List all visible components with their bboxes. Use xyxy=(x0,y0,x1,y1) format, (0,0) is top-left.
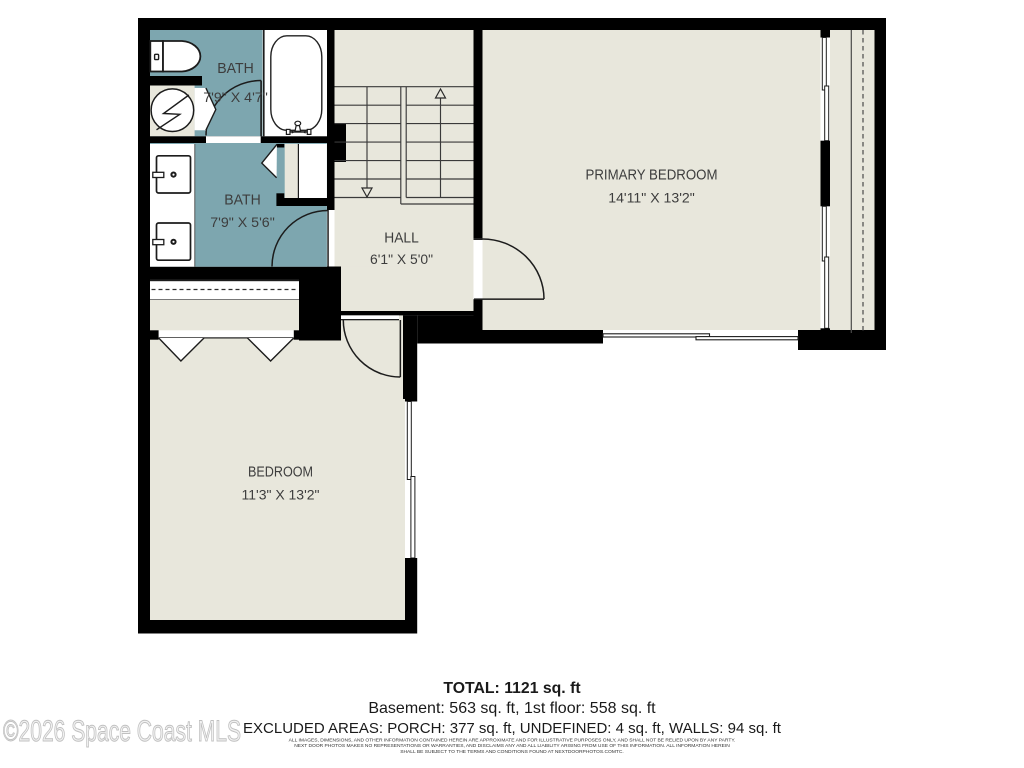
svg-text:Basement: 563 sq. ft, 1st floo: Basement: 563 sq. ft, 1st floor: 558 sq.… xyxy=(368,700,656,717)
svg-text:BEDROOM: BEDROOM xyxy=(248,465,313,481)
svg-text:PRIMARY BEDROOM: PRIMARY BEDROOM xyxy=(586,168,718,184)
svg-text:BATH: BATH xyxy=(224,193,261,209)
svg-text:HALL: HALL xyxy=(384,231,419,247)
svg-text:11'3" X 13'2": 11'3" X 13'2" xyxy=(242,488,320,504)
svg-text:EXCLUDED AREAS: PORCH: 377 sq.: EXCLUDED AREAS: PORCH: 377 sq. ft, UNDEF… xyxy=(243,720,782,737)
svg-text:©2026 Space Coast MLS: ©2026 Space Coast MLS xyxy=(3,715,241,748)
svg-text:7'9" X 5'6": 7'9" X 5'6" xyxy=(210,215,275,231)
svg-text:7'9" X 4'7": 7'9" X 4'7" xyxy=(203,90,268,106)
svg-text:6'1" X 5'0": 6'1" X 5'0" xyxy=(370,252,433,268)
svg-text:NEXT DOOR PHOTOS MAKES NO REPR: NEXT DOOR PHOTOS MAKES NO REPRESENTATION… xyxy=(294,743,730,749)
svg-text:TOTAL: 1121 sq. ft: TOTAL: 1121 sq. ft xyxy=(443,680,581,697)
svg-text:14'11" X 13'2": 14'11" X 13'2" xyxy=(608,191,695,207)
svg-text:BATH: BATH xyxy=(217,61,254,77)
svg-text:ALL IMAGES, DIMENSIONS, AND OT: ALL IMAGES, DIMENSIONS, AND OTHER INFORM… xyxy=(289,737,736,743)
svg-text:SHALL BE SUBJECT TO THE TERMS: SHALL BE SUBJECT TO THE TERMS AND CONDIT… xyxy=(400,749,624,755)
